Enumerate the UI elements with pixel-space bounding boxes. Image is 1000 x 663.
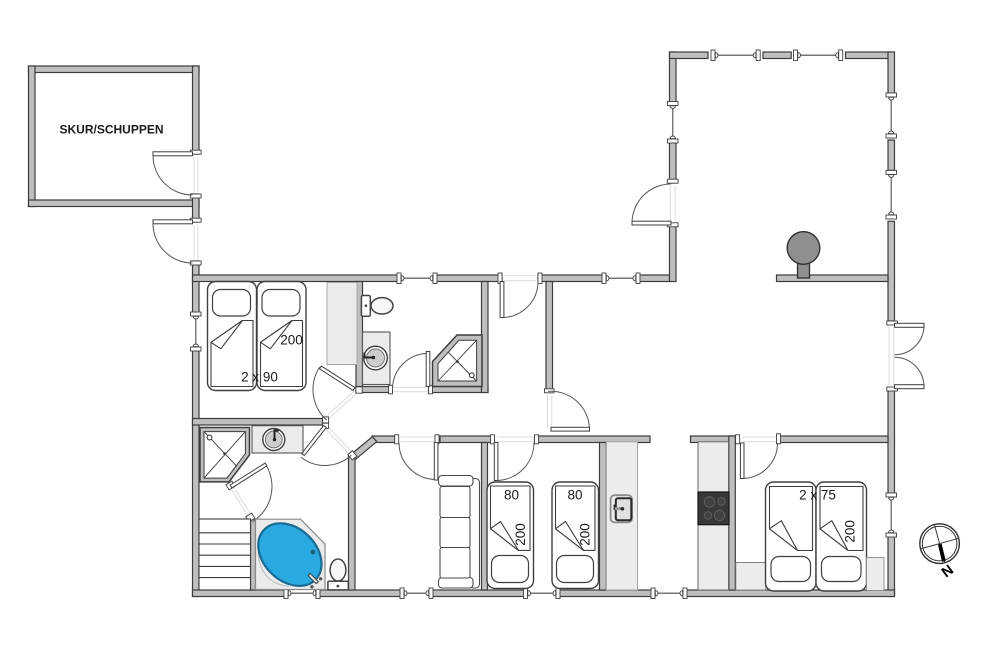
svg-text:80: 80 (504, 488, 519, 503)
svg-text:200: 200 (280, 333, 303, 348)
svg-text:200: 200 (843, 520, 858, 543)
svg-text:2 x 90: 2 x 90 (241, 370, 278, 385)
svg-text:200: 200 (578, 523, 593, 546)
svg-text:SKUR/SCHUPPEN: SKUR/SCHUPPEN (59, 123, 163, 137)
svg-text:2 x 75: 2 x 75 (799, 488, 836, 503)
svg-text:200: 200 (513, 523, 528, 546)
svg-text:80: 80 (567, 488, 582, 503)
